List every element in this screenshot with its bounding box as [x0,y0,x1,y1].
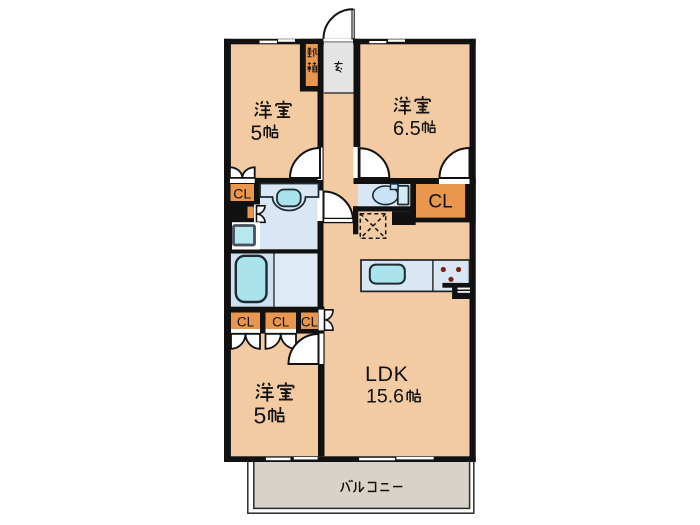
svg-text:CL: CL [233,186,251,202]
svg-text:LDK: LDK [365,362,409,386]
svg-text:CL: CL [272,314,290,329]
svg-text:CL: CL [428,192,452,213]
svg-text:CL: CL [301,314,319,329]
svg-text:5: 5 [251,122,263,145]
svg-text:15.6: 15.6 [366,386,404,408]
svg-text:6.5: 6.5 [393,118,421,140]
svg-text:5: 5 [254,403,267,429]
svg-text:CL: CL [237,314,255,329]
